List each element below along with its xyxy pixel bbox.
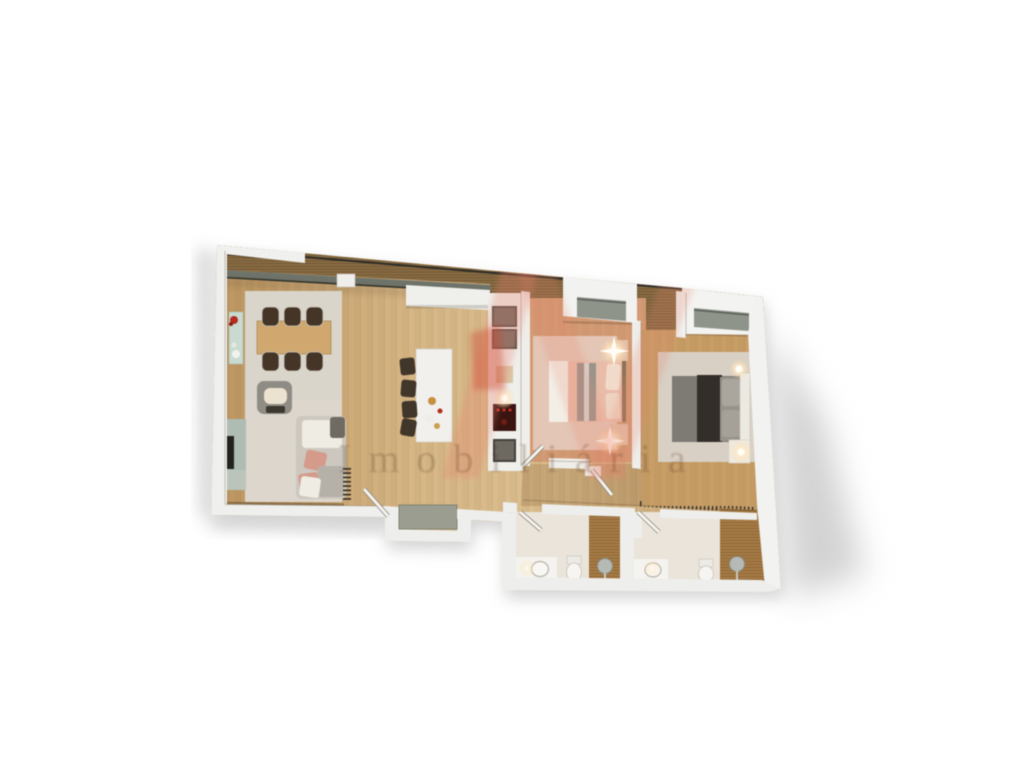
svg-text:Imobiliária: Imobiliária [338, 436, 703, 481]
